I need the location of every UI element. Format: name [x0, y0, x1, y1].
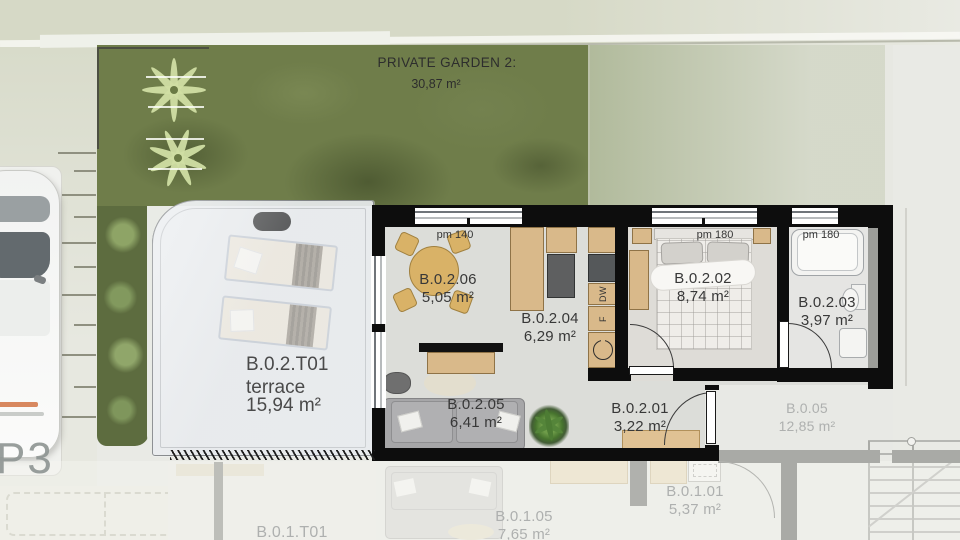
survey-tick-marks: [58, 148, 98, 438]
washing-machine: [588, 332, 618, 368]
terrace-area-label: 15,94 m²: [246, 395, 321, 416]
room-label-b01t01: B.0.1.T01: [240, 524, 344, 540]
car-rear-window: [0, 196, 50, 222]
room-label-b0206: B.0.2.065,05 m²: [402, 271, 494, 307]
window-tick: [702, 218, 705, 226]
console-shelf: [419, 343, 503, 352]
kitchen-sink-dark: [588, 254, 618, 282]
kitchen-bedroom-wall: [615, 225, 628, 368]
fridge: F: [588, 306, 618, 331]
bed-pillow: [661, 241, 704, 264]
plant-icon: [529, 404, 569, 448]
floor-plan: PRIVATE GARDEN 2: 30,87 m² P3: [0, 0, 960, 540]
lower-terrace-wall: [214, 462, 223, 540]
neighbor-wall-h: [892, 450, 960, 463]
room-label-b0205: B.0.2.056,41 m²: [438, 396, 514, 432]
wardrobe-tall: [510, 227, 544, 311]
terrace-edge-hatch: [170, 450, 375, 460]
terrace-window: [371, 256, 386, 324]
staircase-newel: [907, 437, 916, 446]
neighbor-wall-faint: [905, 208, 907, 386]
neighbor-garden-faded: [590, 45, 885, 206]
bedroom-door: [629, 366, 674, 375]
kitchen-stub-wall: [588, 368, 628, 381]
room-label-b0101: B.0.1.015,37 m²: [658, 483, 732, 519]
window-mark-pm180: pm 180: [680, 229, 750, 241]
parked-car: [0, 168, 62, 468]
neighbor-wall-v: [781, 463, 797, 540]
neighbor-kitchen-wall: [630, 460, 647, 506]
room-label-b0201: B.0.2.013,22 m²: [602, 400, 678, 436]
neighbor-wall-h: [718, 450, 880, 463]
right-ground: [893, 45, 960, 450]
car-windshield: [0, 232, 50, 278]
room-label-b0105: B.0.1.057,65 m²: [478, 508, 570, 540]
garden-corner-line-v: [97, 47, 99, 149]
terrace-id-label: B.0.2.T01: [246, 354, 328, 375]
room-label-b0204: B.0.2.046,29 m²: [518, 310, 582, 346]
garden-area-label: 30,87 m²: [372, 77, 500, 92]
car-roof: [0, 280, 50, 336]
nightstand: [632, 228, 652, 244]
bathroom-door: [779, 321, 789, 368]
beanbag-chair: [383, 372, 411, 394]
neighbor-appliance: [688, 459, 721, 482]
kitchen-counter-dark: [547, 254, 575, 298]
window-mark-pm140: pm 140: [420, 229, 490, 241]
dishwasher-label: DW: [598, 286, 608, 302]
garden-label: PRIVATE GARDEN 2:: [366, 55, 528, 71]
exterior-wall-bottom: [372, 448, 712, 461]
kitchen-upper-cabinet: [546, 227, 577, 253]
dishwasher: DW: [588, 283, 618, 305]
neighbor-kitchen-counter: [550, 460, 628, 484]
desk: [427, 352, 495, 374]
shrub-strip: [97, 206, 149, 446]
window-mark-pm180: pm 180: [790, 229, 852, 241]
room-label-b0202: B.0.2.028,74 m²: [656, 270, 750, 306]
kitchen-cabinet: [588, 227, 618, 253]
entrance-door: [706, 391, 716, 444]
sink: [839, 328, 867, 358]
window: [792, 208, 838, 224]
terrace-door-glass: [371, 332, 386, 408]
terrace-glass-overlay: [152, 200, 375, 457]
parking-space-label: P3: [0, 434, 88, 486]
room-label-b005: B.0.0512,85 m²: [772, 399, 842, 435]
bedroom-wardrobe: [629, 250, 649, 310]
neighbor-kitchen-counter: [650, 460, 687, 484]
nightstand: [753, 228, 771, 244]
window-tick: [467, 218, 470, 226]
palm-tree-icon: [128, 46, 226, 200]
fridge-label: F: [598, 316, 608, 322]
room-label-b0203: B.0.2.033,97 m²: [790, 294, 864, 330]
duct-shaft: [868, 228, 878, 368]
parking-dashed-divider: [104, 492, 106, 536]
washing-machine-icon: [593, 340, 613, 360]
